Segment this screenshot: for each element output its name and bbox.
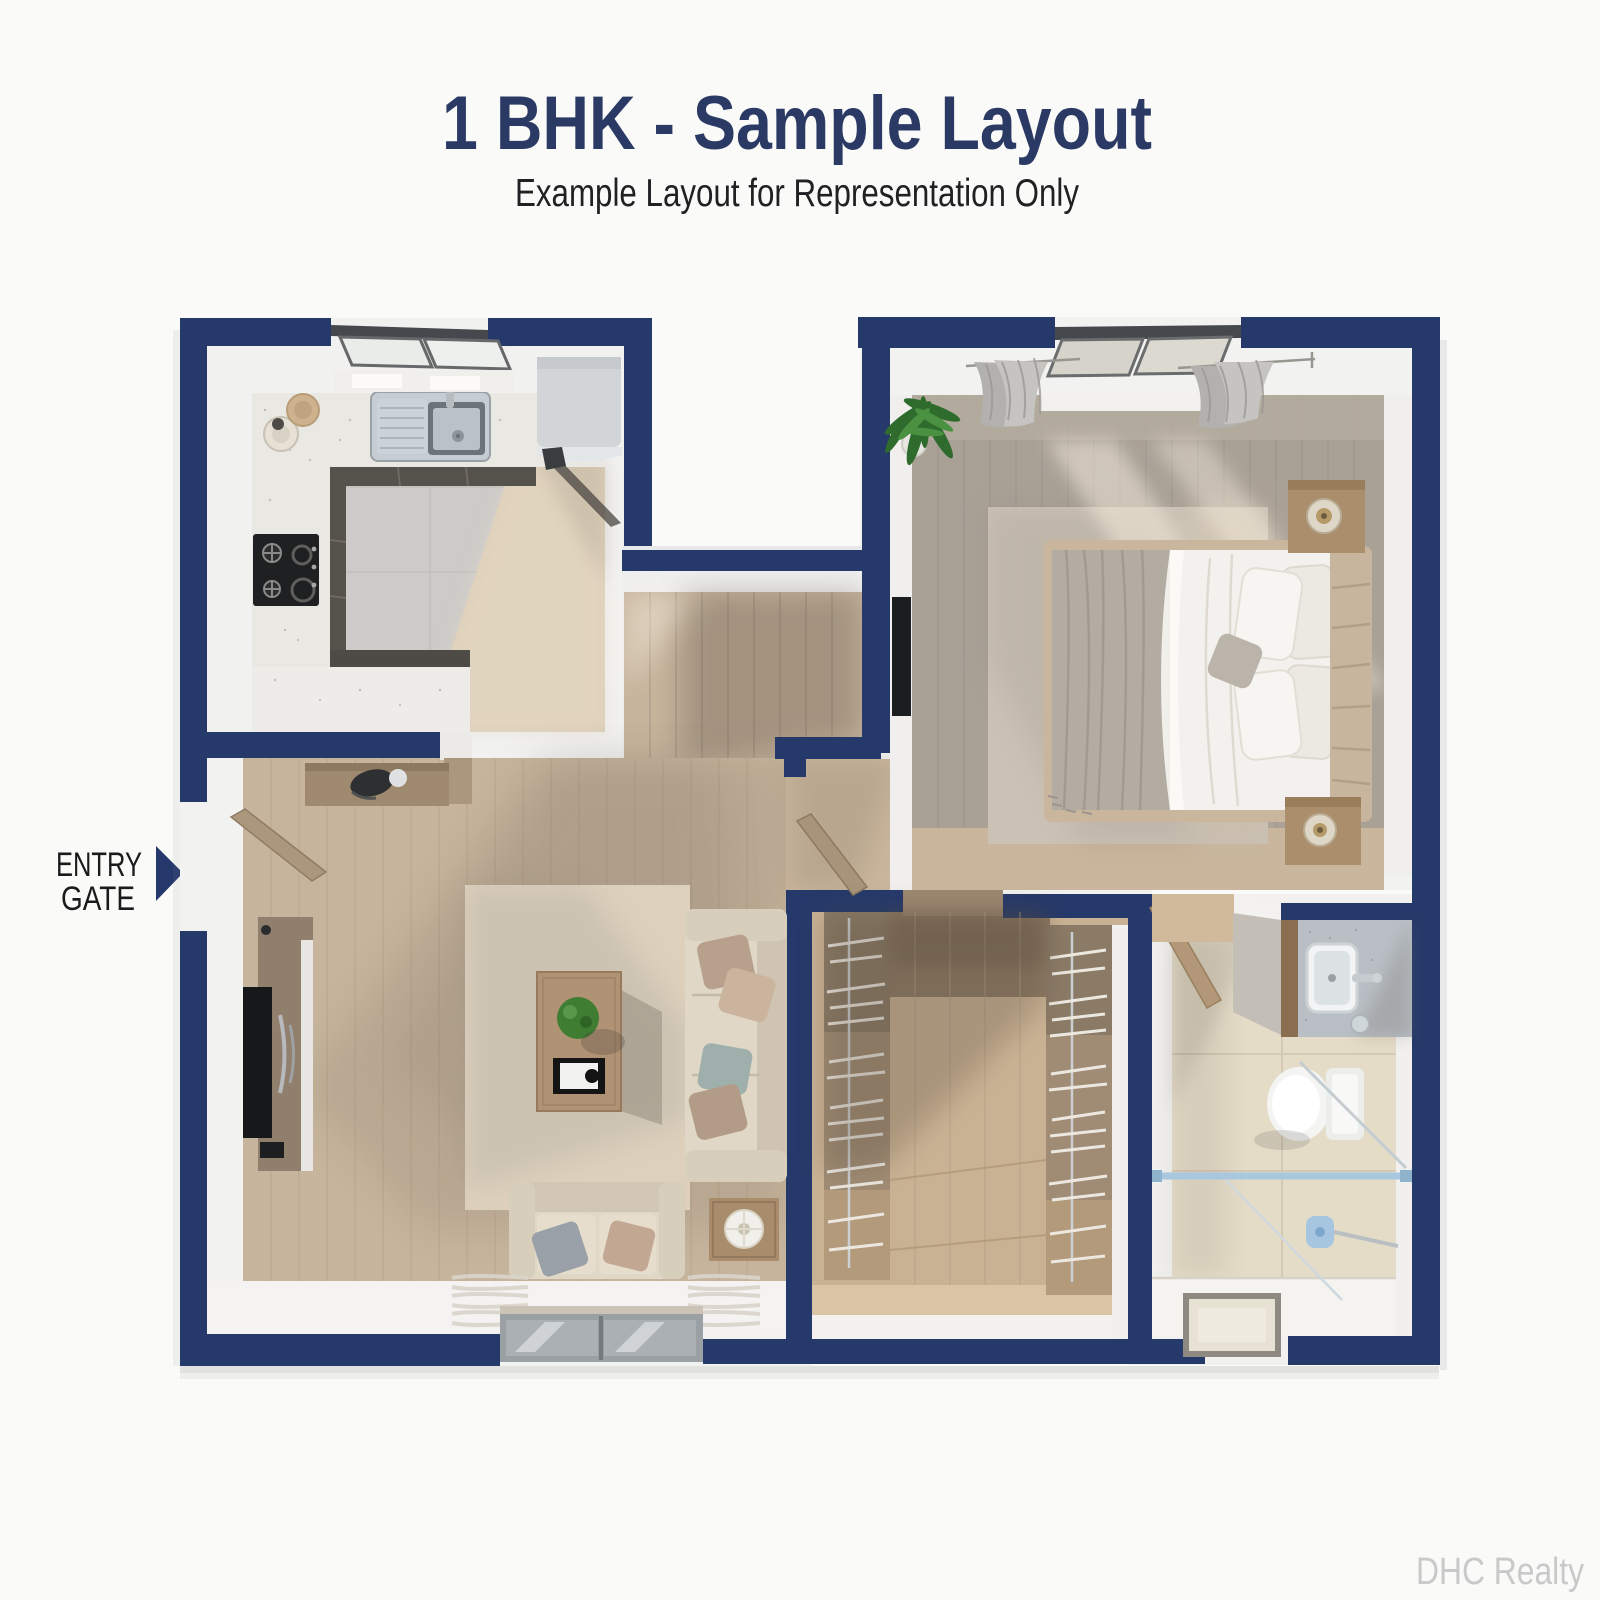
svg-text:GATE: GATE [61,880,135,918]
svg-text:DHC Realty: DHC Realty [1416,1551,1584,1593]
svg-text:Example Layout for Representat: Example Layout for Representation Only [515,172,1079,215]
svg-text:1 BHK - Sample Layout: 1 BHK - Sample Layout [442,81,1152,166]
svg-text:ENTRY: ENTRY [56,846,142,884]
